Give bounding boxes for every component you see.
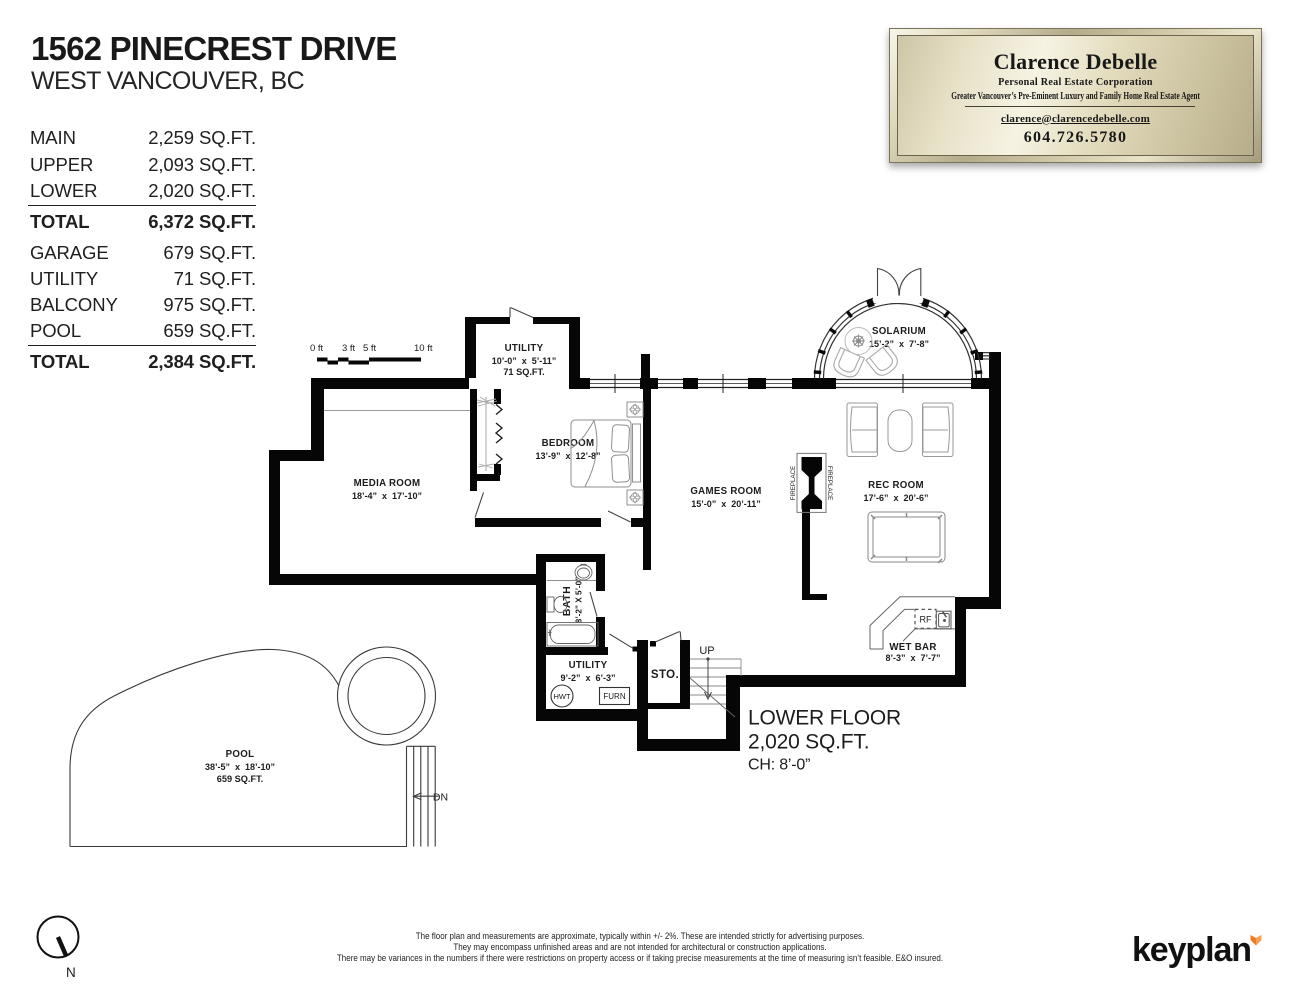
svg-text:17’-6” x 20’-6”: 17’-6” x 20’-6”	[863, 493, 928, 503]
svg-text:2,020 SQ.FT.: 2,020 SQ.FT.	[748, 731, 869, 754]
svg-text:FIREPLACE: FIREPLACE	[826, 466, 833, 500]
svg-text:15’-2” x 7’-8”: 15’-2” x 7’-8”	[869, 339, 929, 349]
svg-text:0 ft: 0 ft	[310, 343, 324, 354]
svg-text:STO.: STO.	[651, 669, 679, 681]
svg-text:9’-2” x 6’-3”: 9’-2” x 6’-3”	[560, 673, 615, 683]
svg-text:659 SQ.FT.: 659 SQ.FT.	[217, 774, 263, 784]
svg-text:UTILITY: UTILITY	[505, 343, 544, 354]
svg-text:UP: UP	[699, 645, 714, 657]
svg-text:8’-3” x 7’-7”: 8’-3” x 7’-7”	[885, 653, 940, 663]
svg-text:GAMES ROOM: GAMES ROOM	[690, 486, 761, 497]
svg-text:10’-0” x 5’-11”: 10’-0” x 5’-11”	[492, 356, 557, 366]
svg-text:15’-0” x 20’-11”: 15’-0” x 20’-11”	[691, 499, 761, 509]
svg-text:3 ft: 3 ft	[342, 343, 356, 354]
svg-text:13’-9” x 12’-8”: 13’-9” x 12’-8”	[535, 451, 600, 461]
svg-text:FURN: FURN	[603, 692, 625, 701]
svg-text:UTILITY: UTILITY	[569, 660, 608, 671]
svg-text:MEDIA ROOM: MEDIA ROOM	[354, 478, 421, 489]
svg-text:WET BAR: WET BAR	[889, 642, 936, 653]
svg-text:SOLARIUM: SOLARIUM	[872, 326, 926, 337]
svg-text:38’-5” x 18’-10”: 38’-5” x 18’-10”	[205, 762, 275, 772]
svg-text:8’-2” X 5’-0”: 8’-2” X 5’-0”	[575, 577, 584, 623]
svg-text:BEDROOM: BEDROOM	[542, 438, 595, 449]
svg-text:LOWER FLOOR: LOWER FLOOR	[748, 707, 901, 730]
svg-text:HWT: HWT	[553, 692, 570, 701]
svg-text:10 ft: 10 ft	[414, 343, 433, 354]
svg-text:FIREPLACE: FIREPLACE	[790, 466, 797, 500]
svg-text:RF: RF	[920, 615, 932, 625]
svg-text:18’-4” x 17’-10”: 18’-4” x 17’-10”	[352, 491, 422, 501]
svg-text:5 ft: 5 ft	[363, 343, 377, 354]
svg-text:71 SQ.FT.: 71 SQ.FT.	[503, 367, 544, 377]
svg-text:POOL: POOL	[226, 749, 255, 760]
svg-text:REC ROOM: REC ROOM	[868, 480, 924, 491]
svg-text:N: N	[66, 965, 76, 980]
svg-text:CH: 8’-0”: CH: 8’-0”	[748, 757, 810, 774]
